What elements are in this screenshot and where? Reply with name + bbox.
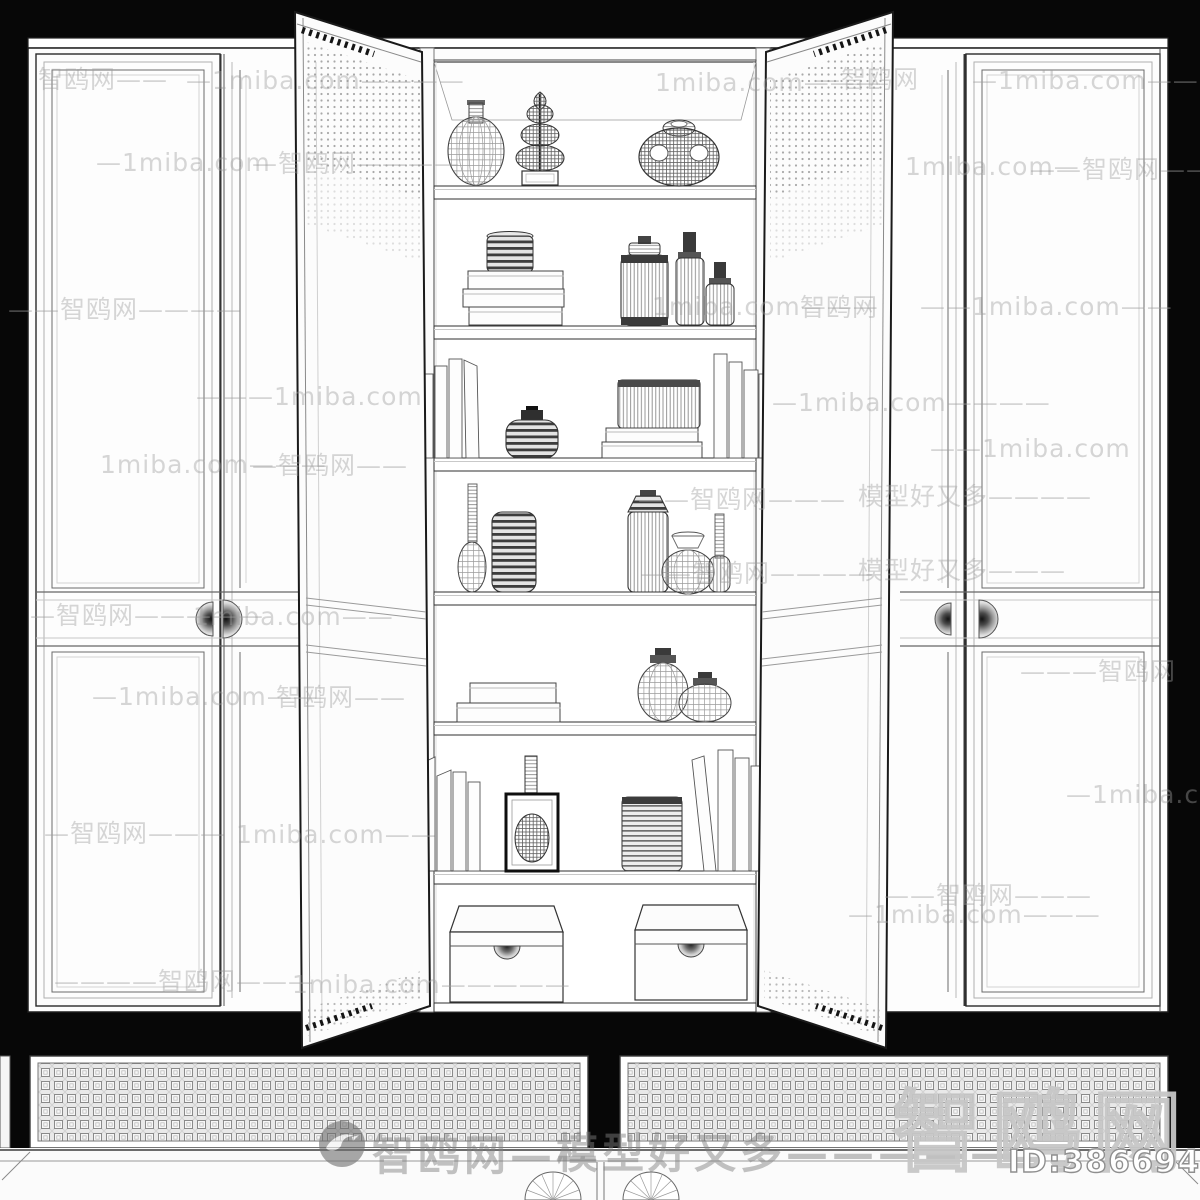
product-screenshot: 智鸥网———1miba.com————1miba.com————智鸥网—1mib… bbox=[0, 0, 1200, 1200]
side-edge-strip bbox=[0, 1056, 10, 1148]
site-bird-logo bbox=[316, 1118, 368, 1170]
wardrobe-wireframe-rendering bbox=[0, 0, 1200, 1200]
right-door-2 bbox=[966, 54, 1160, 1006]
left-door-1 bbox=[36, 54, 220, 1006]
decor-chest-2 bbox=[635, 905, 747, 1000]
wardrobe-cabinet bbox=[28, 12, 1168, 1048]
decor-ribbed-basket bbox=[622, 797, 682, 871]
decor-chest-1 bbox=[450, 906, 563, 1002]
open-door-left bbox=[295, 12, 430, 1048]
interior-floor bbox=[434, 1003, 756, 1012]
decor-big-bottle-vase bbox=[628, 490, 668, 592]
decor-books-leaning bbox=[420, 359, 479, 458]
decor-box-stack bbox=[457, 683, 560, 722]
model-id-badge: ID:386694916 bbox=[1008, 1144, 1200, 1180]
open-door-right bbox=[758, 12, 893, 1048]
cabinet-top-cap bbox=[28, 38, 1168, 48]
decor-ribbed-stack-vase bbox=[492, 512, 536, 592]
